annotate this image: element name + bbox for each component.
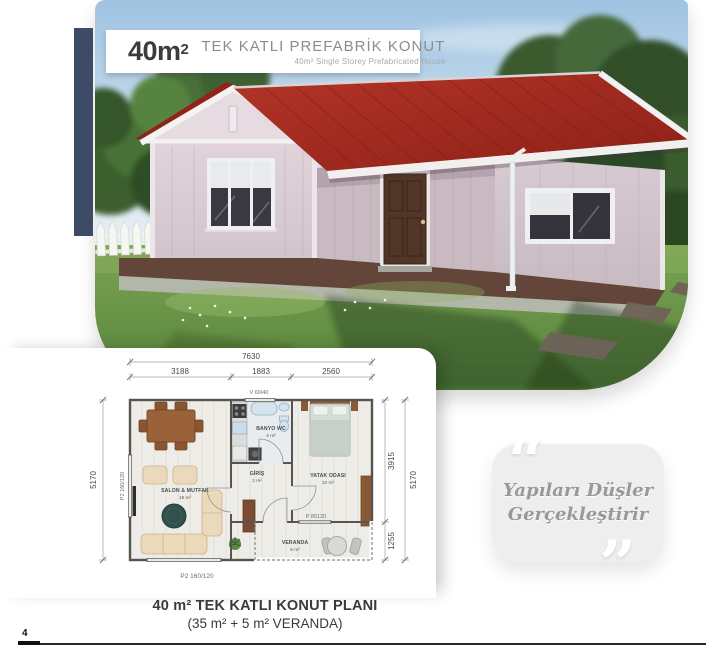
room-name-banyo: BANYO WC bbox=[256, 426, 286, 432]
footer-rule bbox=[40, 643, 706, 645]
dimension-lines-right: 3915 1255 5170 bbox=[381, 397, 418, 563]
dim-right-outer: 5170 bbox=[409, 471, 418, 489]
catalog-page: 40m2 TEK KATLI PREFABRİK KONUT 40m² Sing… bbox=[0, 0, 720, 660]
dim-seg2: 1883 bbox=[252, 367, 270, 376]
gable-vent bbox=[229, 106, 237, 132]
dim-left: 5170 bbox=[89, 471, 98, 489]
dim-seg1: 3188 bbox=[171, 367, 189, 376]
dim-total: 7630 bbox=[242, 352, 260, 361]
kitchen-sink bbox=[233, 422, 247, 434]
accent-bar bbox=[74, 28, 93, 236]
floor-plan: 7630 3188 1883 2560 V 60/40 5170 3915 12… bbox=[85, 350, 435, 596]
dimension-lines-left: 5170 bbox=[89, 397, 107, 563]
bottom-window-label: P2 160/120 bbox=[180, 573, 214, 580]
room-name-salon: SALON & MUTFAK bbox=[161, 488, 209, 494]
left-window-label: P2 160/120 bbox=[120, 472, 126, 500]
header-band: 40m2 TEK KATLI PREFABRİK KONUT 40m² Sing… bbox=[106, 30, 420, 73]
dim-seg3: 2560 bbox=[322, 367, 340, 376]
stove bbox=[233, 404, 247, 418]
nightstand bbox=[301, 401, 308, 411]
page-subtitle: 40m² Single Storey Prefabricated House bbox=[201, 57, 445, 66]
bathtub bbox=[251, 402, 277, 415]
front-door bbox=[378, 170, 432, 272]
grass-highlight bbox=[345, 281, 485, 303]
plan-caption: 40 m² TEK KATLI KONUT PLANI (35 m² + 5 m… bbox=[75, 598, 455, 631]
room-area-veranda: 5 m² bbox=[290, 547, 300, 553]
bathroom-sink bbox=[279, 403, 289, 411]
top-window-label: V 60/40 bbox=[250, 390, 269, 396]
close-quote-icon: ” bbox=[599, 543, 636, 588]
header-text: TEK KATLI PREFABRİK KONUT 40m² Single St… bbox=[201, 38, 445, 66]
veranda-door-label: P 80120 bbox=[306, 514, 326, 520]
dim-right-top: 3915 bbox=[387, 452, 396, 470]
room-area-salon: 19 m² bbox=[179, 495, 192, 501]
nightstand bbox=[351, 401, 358, 411]
dim-right-bottom: 1255 bbox=[387, 532, 396, 550]
pillow bbox=[313, 406, 328, 415]
footer-bar bbox=[18, 641, 40, 645]
right-window bbox=[525, 188, 615, 244]
quote-panel: “ Yapıları Düşler Gerçekleştirir ” bbox=[492, 444, 664, 562]
fridge bbox=[233, 446, 247, 460]
plan-caption-title: 40 m² TEK KATLI KONUT PLANI bbox=[75, 598, 455, 614]
dining-table bbox=[147, 410, 195, 442]
page-title: TEK KATLI PREFABRİK KONUT bbox=[201, 38, 445, 55]
room-name-giris: GİRİŞ bbox=[250, 470, 265, 477]
tv bbox=[133, 486, 137, 516]
area-badge: 40m2 bbox=[128, 38, 188, 65]
veranda-table bbox=[328, 537, 347, 556]
quote-line-2: Gerçekleştirir bbox=[508, 503, 649, 527]
page-number: 4 bbox=[22, 628, 28, 639]
room-area-giris: 2 m² bbox=[252, 478, 262, 484]
floor-plan-card: 7630 3188 1883 2560 V 60/40 5170 3915 12… bbox=[0, 348, 436, 598]
open-quote-icon: “ bbox=[508, 440, 545, 485]
room-area-banyo: 4 m² bbox=[266, 433, 276, 439]
blanket bbox=[310, 420, 350, 456]
room-name-yatak: YATAK ODASI bbox=[310, 473, 346, 479]
kitchen bbox=[232, 402, 247, 462]
armchair bbox=[173, 466, 197, 484]
cabinet bbox=[243, 500, 255, 532]
pillow bbox=[332, 406, 347, 415]
room-name-veranda: VERANDA bbox=[282, 540, 309, 546]
left-window bbox=[205, 158, 277, 232]
dimension-lines-top: 7630 3188 1883 2560 V 60/40 bbox=[127, 352, 375, 396]
veranda-furniture bbox=[321, 537, 362, 556]
grass-highlight bbox=[165, 287, 325, 317]
armchair bbox=[143, 466, 167, 484]
plan-caption-subtitle: (35 m² + 5 m² VERANDA) bbox=[75, 616, 455, 631]
room-area-yatak: 10 m² bbox=[322, 480, 335, 486]
sofa bbox=[141, 534, 207, 554]
